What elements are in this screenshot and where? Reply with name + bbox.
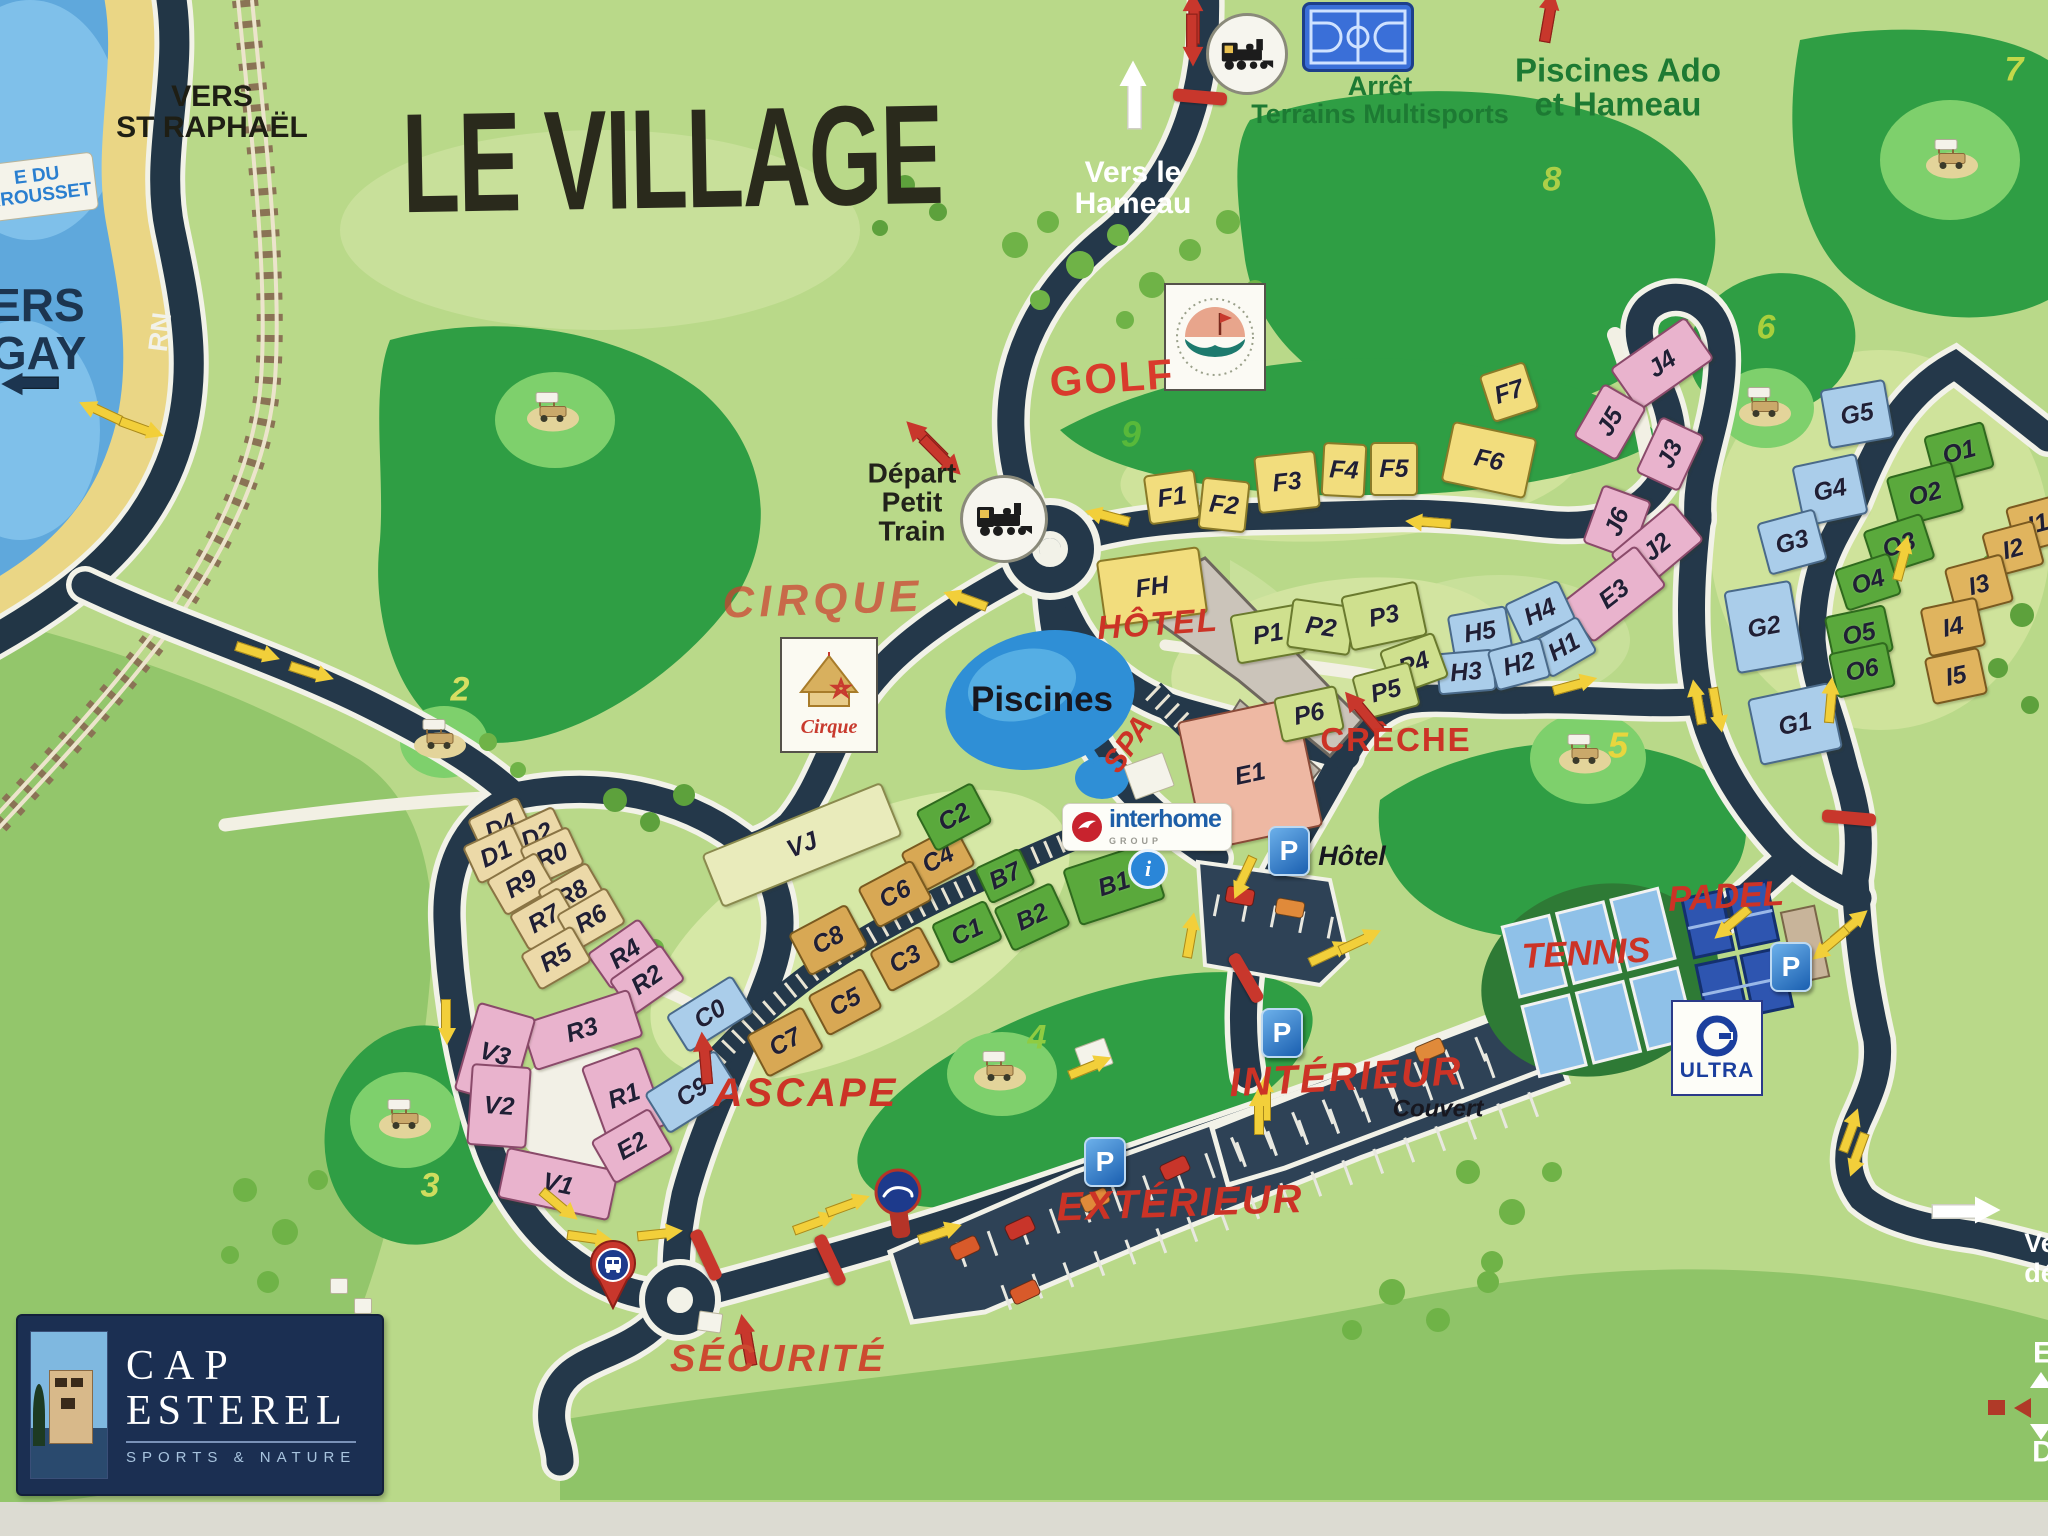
building-label-P2: P2 [1304, 611, 1338, 644]
cap-esterel-photo [30, 1331, 108, 1479]
building-label-P1: P1 [1250, 617, 1285, 651]
golf-club-logo [1164, 283, 1266, 391]
interhome-logo-sub: GROUP [1109, 836, 1162, 846]
nav-arrow [1, 373, 59, 396]
cirque-logo-text: Cirque [801, 716, 858, 739]
building-label-G3: G3 [1772, 524, 1812, 561]
resort-map: i [0, 0, 2048, 1536]
gate-barrier-icon [868, 1168, 928, 1240]
golf-cart-icon [378, 1096, 432, 1145]
building-label-H2: H2 [1500, 646, 1538, 682]
building-label-J5: J5 [1590, 403, 1629, 442]
building-label-R5: R5 [535, 937, 577, 978]
building-label-I5: I5 [1943, 660, 1969, 693]
ultra-logo: ULTRA [1671, 1000, 1763, 1096]
building-label-G2: G2 [1745, 610, 1783, 644]
parking-sign-icon: P [1770, 942, 1812, 992]
building-label-F6: F6 [1472, 443, 1507, 477]
legend-triangle-up [2030, 1372, 2048, 1388]
legend-triangle-down [2030, 1424, 2048, 1440]
building-label-H3: H3 [1449, 656, 1483, 688]
building-label-C6: C6 [874, 874, 916, 915]
building-label-H1: H1 [1543, 626, 1585, 667]
building-label-I3: I3 [1965, 568, 1993, 601]
cap-esterel-line1: CAP [126, 1344, 356, 1388]
building-label-F4: F4 [1329, 455, 1360, 485]
cap-esterel-logo: CAP ESTEREL SPORTS & NATURE [16, 1314, 384, 1496]
building-label-FH: FH [1133, 570, 1170, 603]
ultra-logo-text: ULTRA [1680, 1059, 1755, 1083]
building-F5: F5 [1370, 442, 1418, 496]
train-stop-top-icon [1206, 13, 1288, 95]
photo-margin [0, 1502, 2048, 1536]
building-label-O2: O2 [1905, 476, 1945, 513]
golf-cart-icon [413, 716, 467, 765]
building-label-C8: C8 [807, 920, 849, 961]
building-label-G4: G4 [1811, 472, 1850, 507]
legend-red-square [1988, 1400, 2005, 1415]
building-G2: G2 [1723, 580, 1805, 675]
white-building-4 [330, 1278, 348, 1294]
building-label-E3: E3 [1593, 573, 1635, 615]
petit-train-depart-icon [960, 475, 1048, 563]
building-F4: F4 [1321, 442, 1368, 498]
building-FH: FH [1096, 546, 1208, 628]
building-label-C7: C7 [764, 1022, 806, 1063]
building-label-J3: J3 [1651, 435, 1689, 472]
building-label-C2: C2 [933, 797, 975, 838]
golf-cart-icon [526, 389, 580, 438]
building-label-I4: I4 [1940, 611, 1966, 644]
golf-cart-icon [1558, 731, 1612, 780]
building-label-P3: P3 [1366, 599, 1402, 634]
building-label-J4: J4 [1642, 344, 1681, 384]
building-label-B7: B7 [984, 856, 1025, 896]
building-label-F1: F1 [1156, 481, 1189, 514]
building-label-F5: F5 [1379, 455, 1408, 484]
building-label-R2: R2 [626, 959, 669, 1001]
building-label-O6: O6 [1843, 652, 1882, 687]
building-label-C3: C3 [884, 939, 926, 980]
building-label-P6: P6 [1291, 697, 1327, 732]
direction-arrow [1120, 61, 1147, 130]
building-label-R3: R3 [562, 1011, 601, 1048]
building-label-F2: F2 [1208, 489, 1240, 521]
building-label-J6: J6 [1599, 504, 1636, 540]
interhome-logo-text: interhome [1109, 805, 1221, 833]
parking-sign-icon: P [1084, 1137, 1126, 1187]
parking-sign-icon: P [1261, 1008, 1303, 1058]
building-label-G5: G5 [1838, 397, 1876, 431]
cap-esterel-sub: SPORTS & NATURE [126, 1449, 356, 1466]
info-icon: i [1128, 849, 1168, 889]
building-label-E1: E1 [1232, 757, 1268, 792]
alert-arrow [1183, 14, 1204, 67]
train-glyph [1219, 35, 1275, 73]
bus-stop-icon [589, 1240, 637, 1310]
white-building-3 [697, 1310, 724, 1333]
cirque-logo: Cirque [780, 637, 878, 753]
building-F2: F2 [1197, 477, 1250, 534]
building-label-B2: B2 [1011, 897, 1052, 937]
interhome-bird-icon [1071, 811, 1103, 843]
building-label-C5: C5 [824, 982, 866, 1023]
white-building-5 [354, 1298, 372, 1314]
golf-cart-icon [1738, 384, 1792, 433]
direction-arrow [1932, 1197, 2001, 1224]
multisport-court-icon [1302, 2, 1414, 72]
building-label-C1: C1 [946, 912, 987, 952]
golf-cart-icon [1925, 136, 1979, 185]
building-label-G1: G1 [1776, 706, 1815, 741]
building-label-H4: H4 [1519, 592, 1560, 632]
golf-cart-icon [973, 1048, 1027, 1097]
building-label-E2: E2 [612, 1126, 653, 1166]
building-label-C0: C0 [689, 993, 731, 1035]
cap-esterel-line2: ESTEREL [126, 1389, 356, 1433]
legend-red-triangle [2014, 1398, 2031, 1418]
route-arrow [438, 999, 456, 1045]
building-V2: V2 [466, 1063, 532, 1149]
building-F3: F3 [1253, 450, 1321, 514]
building-label-V2: V2 [483, 1090, 516, 1121]
parking-sign-icon: P [1268, 826, 1310, 876]
map-canvas [0, 0, 2048, 1536]
building-label-O4: O4 [1848, 563, 1889, 601]
interhome-logo: interhome GROUP [1062, 803, 1232, 851]
building-label-F7: F7 [1491, 374, 1528, 411]
building-G5: G5 [1819, 379, 1894, 450]
building-label-H5: H5 [1462, 615, 1499, 649]
building-label-F3: F3 [1271, 466, 1303, 498]
building-label-R1: R1 [604, 1077, 644, 1115]
piscines-pools [930, 611, 1149, 799]
building-label-VJ: VJ [782, 826, 821, 864]
building-F1: F1 [1143, 469, 1201, 526]
sea-and-beach [0, 0, 189, 648]
route-arrow [1249, 1089, 1267, 1135]
building-label-P5: P5 [1367, 673, 1404, 709]
